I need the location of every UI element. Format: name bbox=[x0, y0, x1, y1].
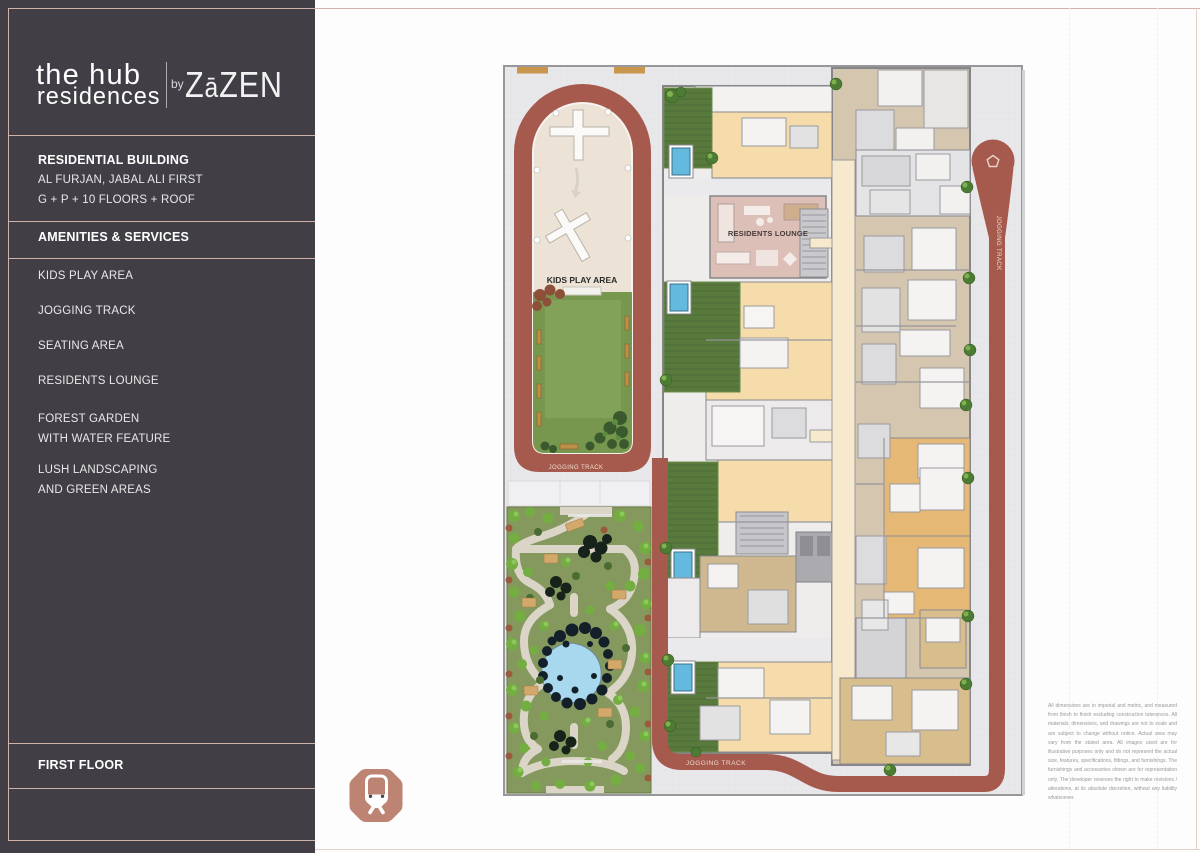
svg-text:JOGGING TRACK: JOGGING TRACK bbox=[995, 216, 1001, 271]
svg-text:JOGGING TRACK: JOGGING TRACK bbox=[686, 760, 746, 767]
svg-text:KIDS PLAY AREA: KIDS PLAY AREA bbox=[547, 275, 618, 285]
svg-text:RESIDENTS LOUNGE: RESIDENTS LOUNGE bbox=[728, 229, 808, 238]
svg-text:JOGGING TRACK: JOGGING TRACK bbox=[549, 465, 604, 471]
